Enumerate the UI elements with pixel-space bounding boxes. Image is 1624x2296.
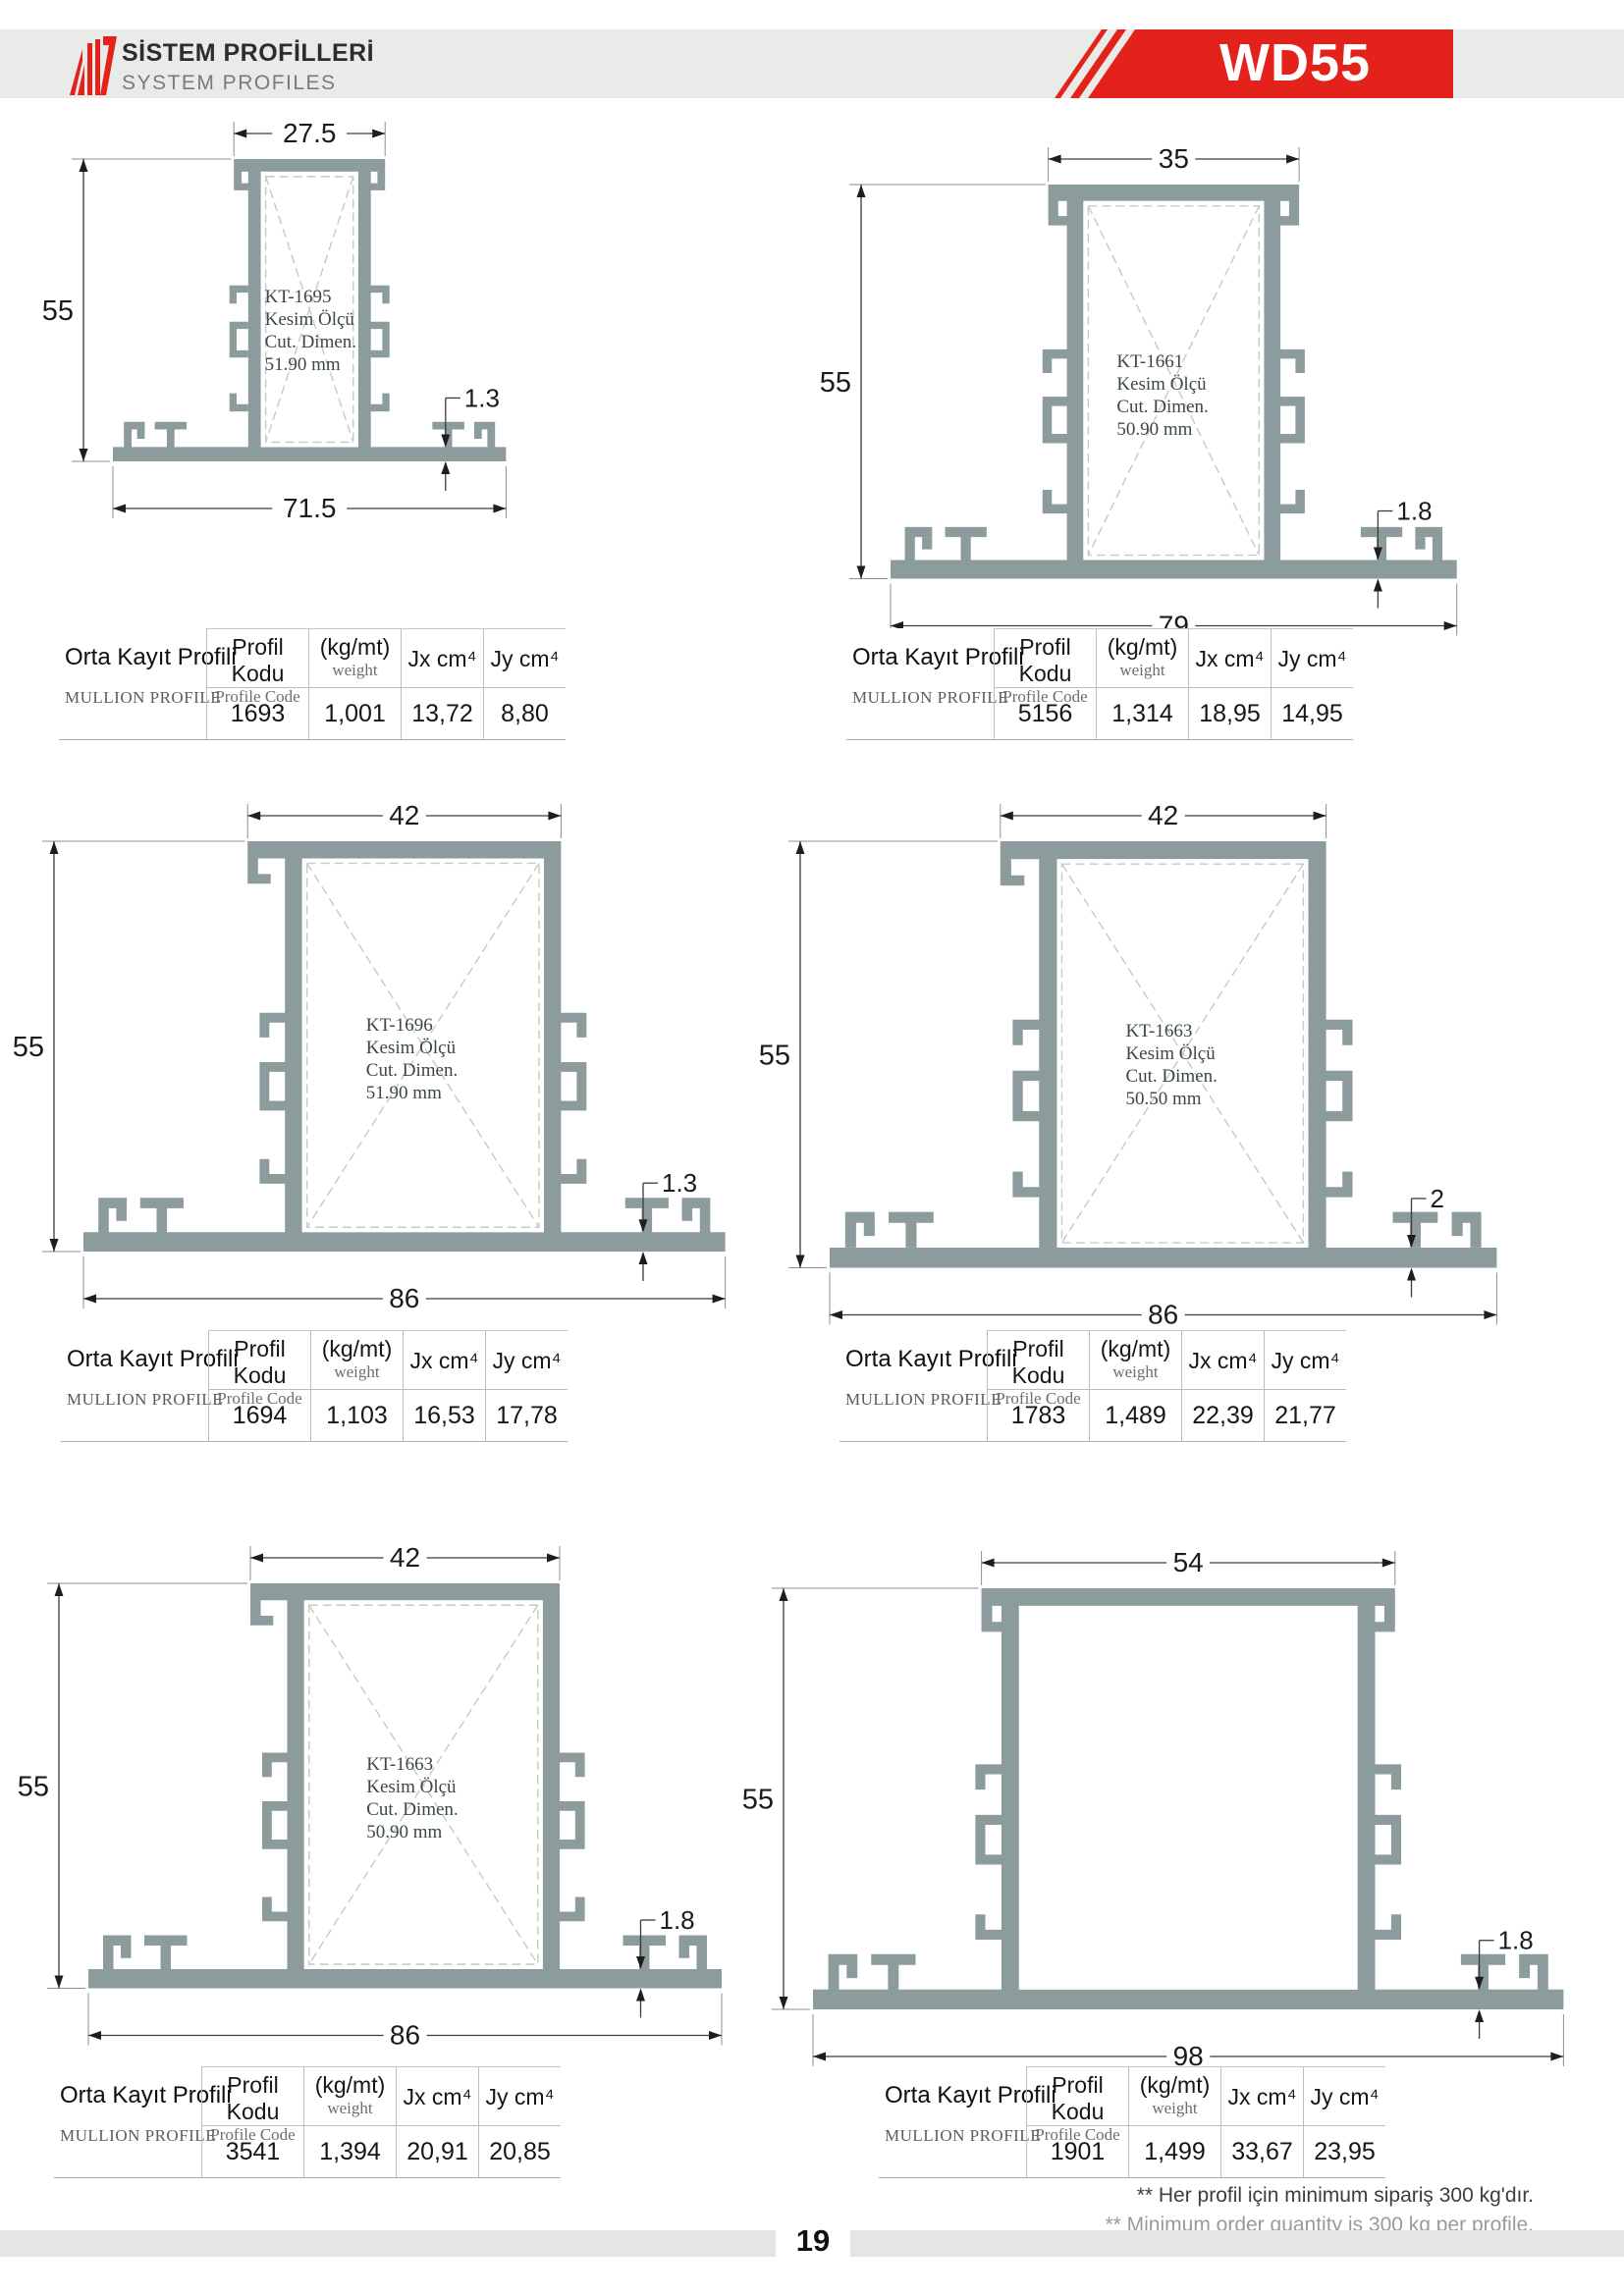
dim-base-width: 86 <box>1148 1300 1178 1330</box>
cut-label-en: Cut. Dimen. <box>265 331 393 353</box>
col-header-code-tr: Profil Kodu <box>988 1336 1089 1389</box>
col-header-jx: Jx cm⁴ <box>397 2067 478 2126</box>
col-header-jy: Jy cm⁴ <box>1265 1331 1346 1390</box>
row-title-en: MULLION PROFILE <box>54 2126 201 2146</box>
col-header-jx: Jx cm⁴ <box>1189 629 1271 688</box>
table-col-code: Profil Kodu Profile Code 1901 <box>1026 2066 1128 2177</box>
dim-thickness: 1.3 <box>464 383 500 412</box>
table-col-weight: (kg/mt) weight 1,314 <box>1096 628 1188 739</box>
row-title-tr: Orta Kayıt Profili <box>879 2082 1026 2109</box>
table-col-jx: Jx cm⁴ 18,95 <box>1188 628 1271 739</box>
dim-top-width: 27.5 <box>283 118 337 148</box>
table-col-jy: Jy cm⁴ 21,77 <box>1264 1330 1346 1441</box>
table-col-jx: Jx cm⁴ 33,67 <box>1220 2066 1303 2177</box>
cut-label-code: KT-1695 <box>265 286 393 308</box>
dim-height: 55 <box>759 1040 790 1071</box>
col-header-weight-en: weight <box>1090 1362 1181 1382</box>
dim-thickness: 2 <box>1431 1184 1444 1213</box>
table-title-cell: Orta Kayıt Profili MULLION PROFILE <box>54 2066 201 2177</box>
table-col-weight: (kg/mt) weight 1,394 <box>303 2066 396 2177</box>
profile-jy-value: 23,95 <box>1304 2126 1385 2177</box>
row-title-en: MULLION PROFILE <box>61 1390 208 1410</box>
col-header-jy: Jy cm⁴ <box>486 1331 568 1390</box>
table-col-jy: Jy cm⁴ 8,80 <box>483 628 566 739</box>
header-title-en: SYSTEM PROFILES <box>122 72 374 95</box>
profile-jy-value: 17,78 <box>486 1390 568 1441</box>
profile-weight-value: 1,103 <box>311 1390 403 1441</box>
table-col-jx: Jx cm⁴ 16,53 <box>403 1330 485 1441</box>
profile-jy-value: 14,95 <box>1272 688 1353 739</box>
table-col-weight: (kg/mt) weight 1,001 <box>308 628 401 739</box>
profile-drawing: 5455981.8 <box>720 1531 1607 2100</box>
catalog-page: SİSTEM PROFİLLERİ SYSTEM PROFILES WD55 2… <box>0 0 1624 2296</box>
col-header-code: Profil Kodu Profile Code <box>995 629 1096 688</box>
profile-jx-value: 33,67 <box>1221 2126 1303 2177</box>
row-title-tr: Orta Kayıt Profili <box>839 1346 987 1373</box>
series-banner: WD55 <box>1049 29 1453 98</box>
col-header-weight: (kg/mt) weight <box>1090 1331 1181 1390</box>
col-header-weight: (kg/mt) weight <box>1129 2067 1220 2126</box>
profile-weight-value: 1,394 <box>304 2126 396 2177</box>
dim-thickness: 1.8 <box>1498 1926 1534 1955</box>
table-title-cell: Orta Kayıt Profili MULLION PROFILE <box>839 1330 987 1441</box>
cut-label-en: Cut. Dimen. <box>1125 1065 1253 1088</box>
table-col-jy: Jy cm⁴ 17,78 <box>485 1330 568 1441</box>
row-title-tr: Orta Kayıt Profili <box>61 1346 208 1373</box>
cut-label-tr: Kesim Ölçü <box>366 1776 494 1798</box>
profile-jx-value: 13,72 <box>402 688 483 739</box>
dim-base-width: 71.5 <box>283 493 337 523</box>
col-header-weight: (kg/mt) weight <box>309 629 401 688</box>
footnote-tr: ** Her profil için minimum sipariş 300 k… <box>1105 2181 1534 2211</box>
col-header-weight-tr: (kg/mt) <box>1097 634 1188 661</box>
table-col-code: Profil Kodu Profile Code 1783 <box>987 1330 1089 1441</box>
table-col-code: Profil Kodu Profile Code 1693 <box>206 628 308 739</box>
col-header-weight: (kg/mt) weight <box>304 2067 396 2126</box>
row-title-en: MULLION PROFILE <box>59 688 206 708</box>
col-header-jx: Jx cm⁴ <box>404 1331 485 1390</box>
profile-spec-table: Orta Kayıt Profili MULLION PROFILE Profi… <box>59 628 566 740</box>
profile-cut-label: KT-1663 Kesim Ölçü Cut. Dimen. 50.90 mm <box>366 1753 494 1843</box>
dim-top-width: 42 <box>1148 800 1178 830</box>
col-header-jy: Jy cm⁴ <box>1272 629 1353 688</box>
table-col-jy: Jy cm⁴ 23,95 <box>1303 2066 1385 2177</box>
table-col-weight: (kg/mt) weight 1,489 <box>1089 1330 1181 1441</box>
dim-height: 55 <box>820 367 851 399</box>
dim-thickness: 1.8 <box>1396 497 1432 526</box>
col-header-jx: Jx cm⁴ <box>1182 1331 1264 1390</box>
dim-base-width: 86 <box>390 2020 420 2051</box>
page-number: 19 <box>796 2223 830 2258</box>
profile-spec-table: Orta Kayıt Profili MULLION PROFILE Profi… <box>879 2066 1385 2178</box>
cut-label-tr: Kesim Ölçü <box>1125 1042 1253 1065</box>
dim-base-width: 86 <box>389 1283 419 1313</box>
page-number-box: 19 <box>776 2220 850 2262</box>
row-title-tr: Orta Kayıt Profili <box>59 644 206 671</box>
table-title-cell: Orta Kayıt Profili MULLION PROFILE <box>846 628 994 739</box>
dim-height: 55 <box>13 1032 44 1063</box>
table-col-code: Profil Kodu Profile Code 3541 <box>201 2066 303 2177</box>
profile-cut-label: KT-1696 Kesim Ölçü Cut. Dimen. 51.90 mm <box>366 1014 494 1104</box>
profile-geometry <box>813 1588 1563 2009</box>
table-col-jy: Jy cm⁴ 14,95 <box>1271 628 1353 739</box>
profile-weight-value: 1,001 <box>309 688 401 739</box>
table-col-jx: Jx cm⁴ 22,39 <box>1181 1330 1264 1441</box>
cut-label-tr: Kesim Ölçü <box>366 1037 494 1059</box>
row-title-en: MULLION PROFILE <box>839 1390 987 1410</box>
dim-top-width: 42 <box>390 1542 420 1573</box>
dim-height: 55 <box>742 1785 774 1816</box>
col-header-code-tr: Profil Kodu <box>209 1336 310 1389</box>
col-header-code: Profil Kodu Profile Code <box>202 2067 303 2126</box>
col-header-jy: Jy cm⁴ <box>1304 2067 1385 2126</box>
cut-label-mm: 50.50 mm <box>1125 1088 1253 1110</box>
logo-seven <box>100 36 117 95</box>
row-title-en: MULLION PROFILE <box>846 688 994 708</box>
col-header-weight-tr: (kg/mt) <box>309 634 401 661</box>
dim-height: 55 <box>42 295 74 327</box>
dim-thickness: 1.3 <box>662 1168 697 1198</box>
table-col-jx: Jx cm⁴ 13,72 <box>401 628 483 739</box>
profile-weight-value: 1,314 <box>1097 688 1188 739</box>
col-header-code-tr: Profil Kodu <box>995 634 1096 687</box>
profile-jx-value: 22,39 <box>1182 1390 1264 1441</box>
table-title-cell: Orta Kayıt Profili MULLION PROFILE <box>59 628 206 739</box>
col-header-code-tr: Profil Kodu <box>207 634 308 687</box>
cut-label-mm: 51.90 mm <box>265 353 393 376</box>
table-col-weight: (kg/mt) weight 1,103 <box>310 1330 403 1441</box>
profile-cut-label: KT-1661 Kesim Ölçü Cut. Dimen. 50.90 mm <box>1116 350 1244 441</box>
table-col-jx: Jx cm⁴ 20,91 <box>396 2066 478 2177</box>
dim-top-width: 54 <box>1173 1547 1204 1577</box>
dim-top-width: 42 <box>389 800 419 830</box>
dim-thickness: 1.8 <box>660 1905 695 1935</box>
profile-jx-value: 16,53 <box>404 1390 485 1441</box>
table-title-cell: Orta Kayıt Profili MULLION PROFILE <box>61 1330 208 1441</box>
profile-weight-value: 1,499 <box>1129 2126 1220 2177</box>
series-label: WD55 <box>1137 29 1453 98</box>
cut-label-en: Cut. Dimen. <box>366 1059 494 1082</box>
col-header-code: Profil Kodu Profile Code <box>988 1331 1089 1390</box>
table-col-weight: (kg/mt) weight 1,499 <box>1128 2066 1220 2177</box>
col-header-code-tr: Profil Kodu <box>202 2072 303 2125</box>
col-header-weight-en: weight <box>311 1362 403 1382</box>
brand-logo-icon <box>69 35 118 96</box>
col-header-code: Profil Kodu Profile Code <box>209 1331 310 1390</box>
col-header-weight: (kg/mt) weight <box>1097 629 1188 688</box>
cut-label-en: Cut. Dimen. <box>1116 396 1244 418</box>
header-title-tr: SİSTEM PROFİLLERİ <box>122 39 374 68</box>
row-title-tr: Orta Kayıt Profili <box>54 2082 201 2109</box>
table-col-jy: Jy cm⁴ 20,85 <box>478 2066 561 2177</box>
logo-bar1 <box>87 43 92 95</box>
cut-label-code: KT-1696 <box>366 1014 494 1037</box>
col-header-jx: Jx cm⁴ <box>1221 2067 1303 2126</box>
col-header-code: Profil Kodu Profile Code <box>1027 2067 1128 2126</box>
col-header-weight-en: weight <box>1097 661 1188 680</box>
profile-weight-value: 1,489 <box>1090 1390 1181 1441</box>
cut-label-tr: Kesim Ölçü <box>265 308 393 331</box>
col-header-weight-en: weight <box>304 2099 396 2118</box>
col-header-jy: Jy cm⁴ <box>484 629 566 688</box>
cut-label-tr: Kesim Ölçü <box>1116 373 1244 396</box>
profile-jx-value: 20,91 <box>397 2126 478 2177</box>
table-col-code: Profil Kodu Profile Code 1694 <box>208 1330 310 1441</box>
row-title-tr: Orta Kayıt Profili <box>846 644 994 671</box>
profile-spec-table: Orta Kayıt Profili MULLION PROFILE Profi… <box>54 2066 561 2178</box>
col-header-jx: Jx cm⁴ <box>402 629 483 688</box>
table-title-cell: Orta Kayıt Profili MULLION PROFILE <box>879 2066 1026 2177</box>
col-header-weight-en: weight <box>1129 2099 1220 2118</box>
cut-label-mm: 50.90 mm <box>366 1821 494 1843</box>
col-header-weight: (kg/mt) weight <box>311 1331 403 1390</box>
col-header-code: Profil Kodu Profile Code <box>207 629 308 688</box>
col-header-code-tr: Profil Kodu <box>1027 2072 1128 2125</box>
dim-height: 55 <box>18 1771 49 1802</box>
profile-jy-value: 21,77 <box>1265 1390 1346 1441</box>
profile-spec-table: Orta Kayıt Profili MULLION PROFILE Profi… <box>846 628 1353 740</box>
table-col-code: Profil Kodu Profile Code 5156 <box>994 628 1096 739</box>
profile-jy-value: 8,80 <box>484 688 566 739</box>
profile-spec-table: Orta Kayıt Profili MULLION PROFILE Profi… <box>839 1330 1346 1442</box>
col-header-weight-tr: (kg/mt) <box>1090 1336 1181 1362</box>
profile-jy-value: 20,85 <box>479 2126 561 2177</box>
col-header-weight-tr: (kg/mt) <box>311 1336 403 1362</box>
cut-label-en: Cut. Dimen. <box>366 1798 494 1821</box>
row-title-en: MULLION PROFILE <box>879 2126 1026 2146</box>
brand-titles: SİSTEM PROFİLLERİ SYSTEM PROFILES <box>122 39 374 95</box>
profile-spec-table: Orta Kayıt Profili MULLION PROFILE Profi… <box>61 1330 568 1442</box>
cut-label-mm: 51.90 mm <box>366 1082 494 1104</box>
logo-bar2 <box>95 39 100 95</box>
col-header-weight-tr: (kg/mt) <box>1129 2072 1220 2099</box>
cut-label-code: KT-1663 <box>366 1753 494 1776</box>
cut-label-code: KT-1661 <box>1116 350 1244 373</box>
col-header-weight-tr: (kg/mt) <box>304 2072 396 2099</box>
profile-jx-value: 18,95 <box>1189 688 1271 739</box>
col-header-weight-en: weight <box>309 661 401 680</box>
col-header-jy: Jy cm⁴ <box>479 2067 561 2126</box>
profile-cut-label: KT-1663 Kesim Ölçü Cut. Dimen. 50.50 mm <box>1125 1020 1253 1110</box>
cut-label-mm: 50.90 mm <box>1116 418 1244 441</box>
cut-label-code: KT-1663 <box>1125 1020 1253 1042</box>
profile-cut-label: KT-1695 Kesim Ölçü Cut. Dimen. 51.90 mm <box>265 286 393 376</box>
dim-top-width: 35 <box>1159 143 1189 174</box>
